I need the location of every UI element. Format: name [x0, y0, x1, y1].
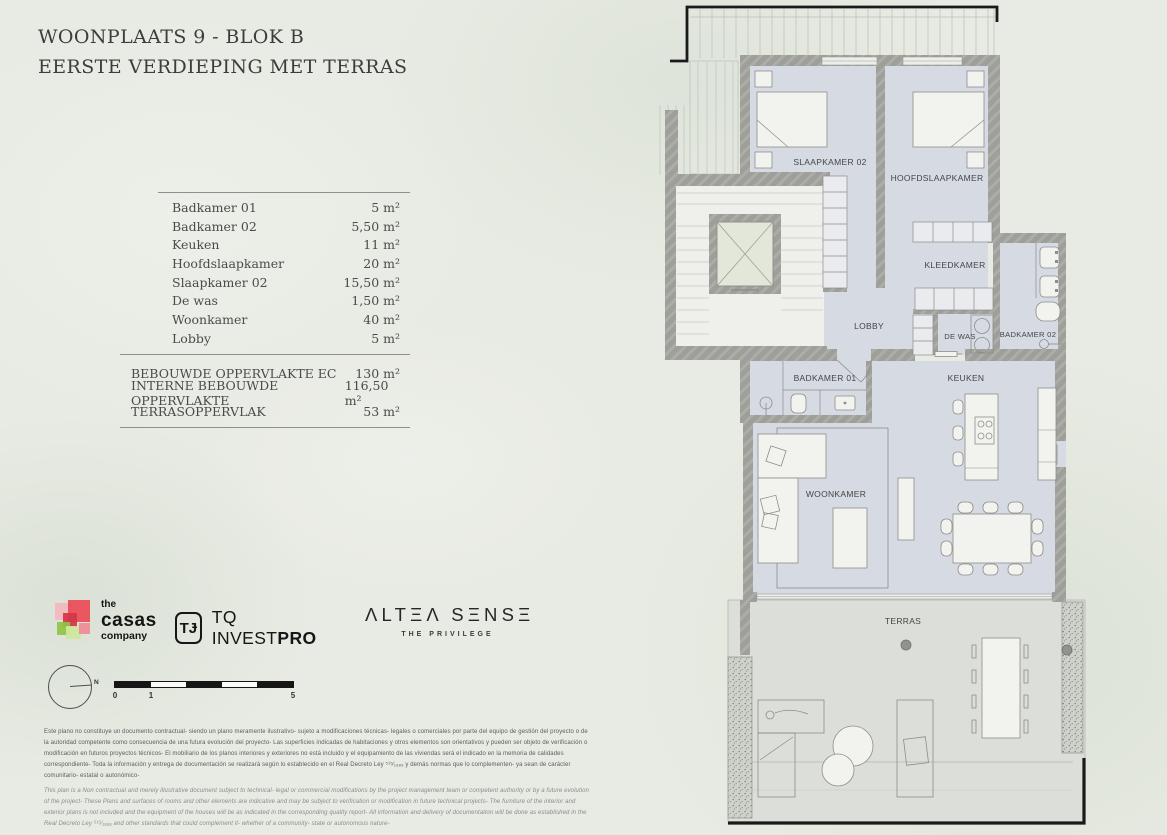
compass: N	[48, 665, 92, 709]
room-name: Hoofdslaapkamer	[172, 256, 284, 271]
table-row: Badkamer 025,50 m²	[120, 217, 410, 236]
casas-logo-text: the casas company	[101, 600, 157, 642]
room-name: Lobby	[172, 331, 211, 346]
table-row: Slaapkamer 0215,50 m²	[120, 273, 410, 292]
room-size: 40 m²	[363, 312, 400, 327]
floor-plan: SLAAPKAMER 02 HOOFDSLAAPKAMER KLEEDKAMER…	[640, 0, 1167, 835]
scale-bar-segments	[114, 681, 294, 688]
tq-name: TQ INVESTPRO	[212, 607, 322, 649]
casas-the: the	[101, 600, 157, 610]
room-name: De was	[172, 293, 218, 308]
room-label-hoofdslaapkamer: HOOFDSLAAPKAMER	[891, 173, 984, 183]
room-label-de-was: DE WAS	[944, 332, 975, 341]
casas-logo-icon	[55, 600, 95, 644]
room-label-woonkamer: WOONKAMER	[806, 489, 866, 499]
area-table-summary: BEBOUWDE OPPERVLAKTE EC130 m² INTERNE BE…	[120, 364, 410, 422]
summary-row: INTERNE BEBOUWDE OPPERVLAKTE116,50 m²	[120, 383, 410, 402]
room-size: 5,50 m²	[351, 219, 400, 234]
room-label-slaapkamer-02: SLAAPKAMER 02	[793, 157, 866, 167]
altea-subtitle: THE PRIVILEGE	[365, 631, 530, 638]
brochure-page: WOONPLAATS 9 - BLOK B EERSTE VERDIEPING …	[0, 0, 1167, 835]
scale-bar-labels: 0 1 5	[114, 691, 294, 703]
room-label-badkamer-01: BADKAMER 01	[794, 373, 857, 383]
area-table: Badkamer 015 m² Badkamer 025,50 m² Keuke…	[120, 192, 410, 428]
room-size: 11 m²	[363, 237, 400, 252]
summary-value: 53 m²	[363, 404, 400, 419]
badkamer-02-fixtures	[1036, 243, 1060, 321]
table-row: Badkamer 015 m²	[120, 198, 410, 217]
room-size: 1,50 m²	[351, 293, 400, 308]
compass-north-label: N	[94, 679, 99, 686]
tq-monogram-icon: TɈ	[175, 612, 202, 644]
tq-investpro-logo: TɈ TQ INVESTPRO	[175, 607, 322, 649]
room-name: Badkamer 02	[172, 219, 257, 234]
page-title-line1: WOONPLAATS 9 - BLOK B	[38, 22, 407, 52]
disclaimer-spanish: Este plano no constituye un documento co…	[44, 727, 593, 782]
tq-name-regular: TQ INVEST	[212, 607, 278, 648]
page-title: WOONPLAATS 9 - BLOK B EERSTE VERDIEPING …	[38, 22, 407, 82]
scale-bar: 0 1 5	[114, 681, 294, 703]
room-size: 15,50 m²	[343, 275, 400, 290]
room-label-kleedkamer: KLEEDKAMER	[924, 260, 985, 270]
casas-company-logo: the casas company	[55, 600, 195, 648]
summary-row: TERRASOPPERVLAK53 m²	[120, 402, 410, 421]
tq-name-bold: PRO	[277, 628, 316, 648]
room-name: Woonkamer	[172, 312, 247, 327]
scale-label-5: 5	[291, 691, 295, 700]
room-label-lobby: LOBBY	[854, 321, 884, 331]
page-title-line2: EERSTE VERDIEPING MET TERRAS	[38, 52, 407, 82]
casas-casas: casas	[101, 611, 157, 630]
room-size: 5 m²	[371, 200, 400, 215]
room-name: Badkamer 01	[172, 200, 257, 215]
room-name: Slaapkamer 02	[172, 275, 268, 290]
room-label-terras: TERRAS	[885, 616, 921, 626]
summary-value: 116,50 m²	[345, 378, 400, 408]
room-name: Keuken	[172, 237, 219, 252]
facade-hatch-top	[690, 9, 996, 58]
room-size: 20 m²	[363, 256, 400, 271]
room-label-keuken: KEUKEN	[948, 373, 985, 383]
disclaimer-english: This plan is a Non contractual and merel…	[44, 786, 593, 830]
altea-sense-logo: ΛLTΞΛ SΞNSΞ THE PRIVILEGE	[365, 604, 530, 638]
scale-label-0: 0	[113, 691, 117, 700]
elevator	[709, 214, 781, 294]
room-label-badkamer-02: BADKAMER 02	[1000, 330, 1056, 339]
table-row: Lobby5 m²	[120, 329, 410, 348]
table-row: Hoofdslaapkamer20 m²	[120, 254, 410, 273]
room-size: 5 m²	[371, 331, 400, 346]
altea-name: ΛLTΞΛ SΞNSΞ	[365, 604, 530, 626]
table-row: Woonkamer40 m²	[120, 310, 410, 329]
table-row: De was1,50 m²	[120, 291, 410, 310]
casas-company: company	[101, 631, 157, 642]
table-row: Keuken11 m²	[120, 235, 410, 254]
table-rule-bottom	[120, 427, 410, 428]
summary-label: INTERNE BEBOUWDE OPPERVLAKTE	[131, 378, 345, 408]
summary-label: TERRASOPPERVLAK	[131, 404, 266, 419]
area-table-rows: Badkamer 015 m² Badkamer 025,50 m² Keuke…	[120, 198, 410, 348]
scale-label-1: 1	[149, 691, 153, 700]
table-rule-mid	[120, 354, 410, 355]
table-rule-top	[158, 192, 410, 193]
